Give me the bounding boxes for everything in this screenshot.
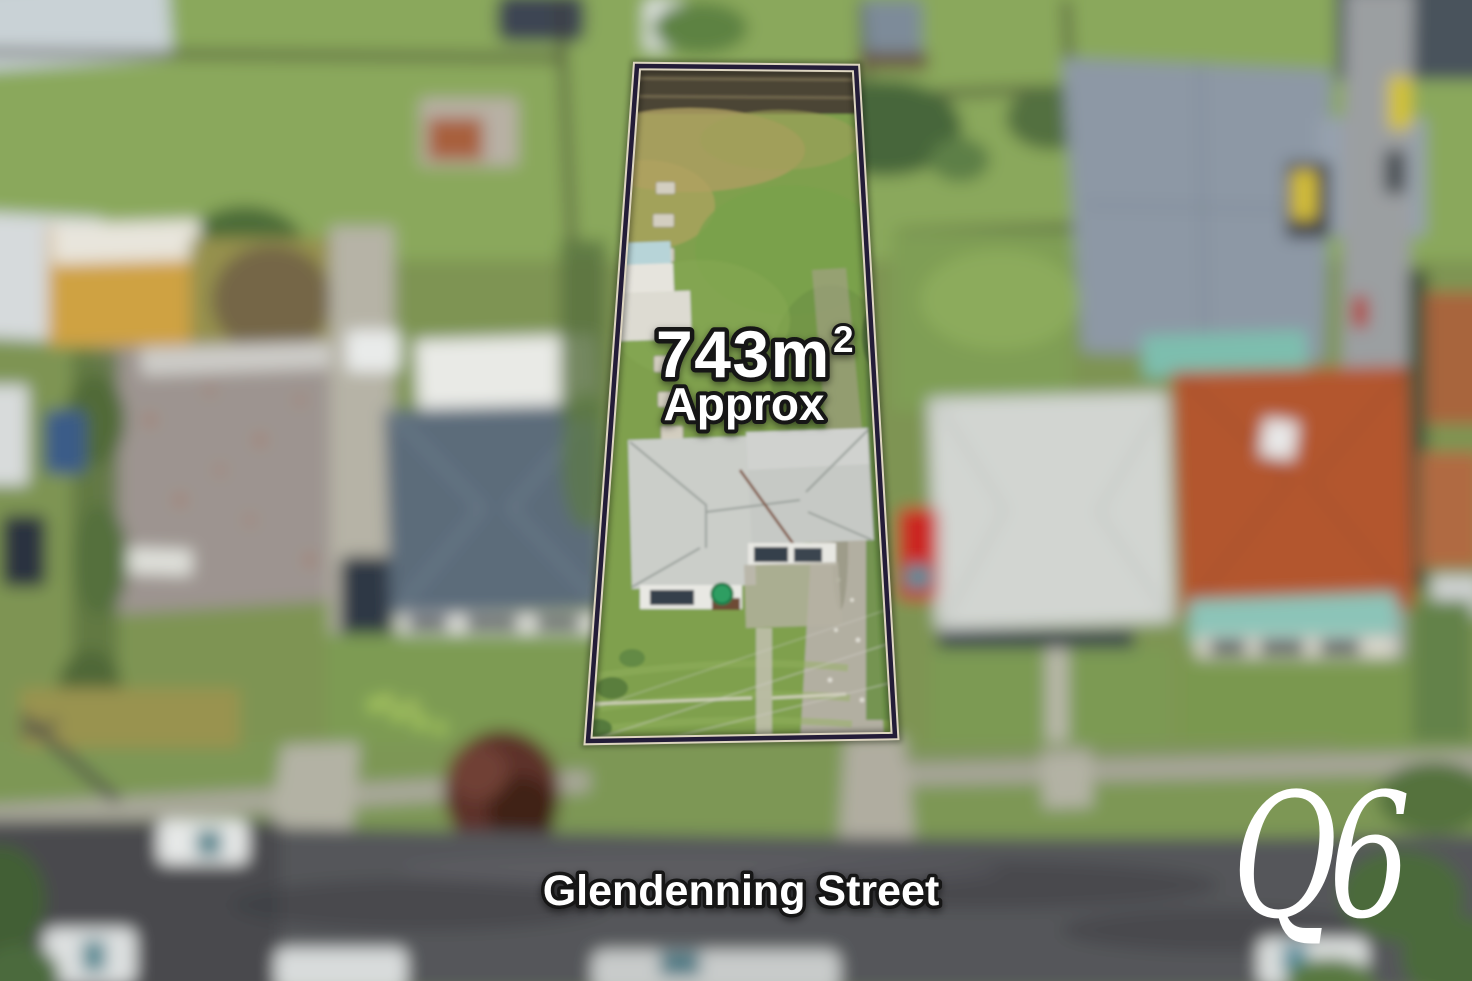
aerial-photo: 743m 2 Approx Glendenning Street Q6: [0, 0, 1472, 981]
area-exponent: 2: [833, 319, 854, 360]
area-qualifier-label: Approx: [664, 378, 825, 430]
agency-logo: Q6: [1232, 756, 1407, 956]
street-name-label: Glendenning Street: [543, 867, 940, 915]
